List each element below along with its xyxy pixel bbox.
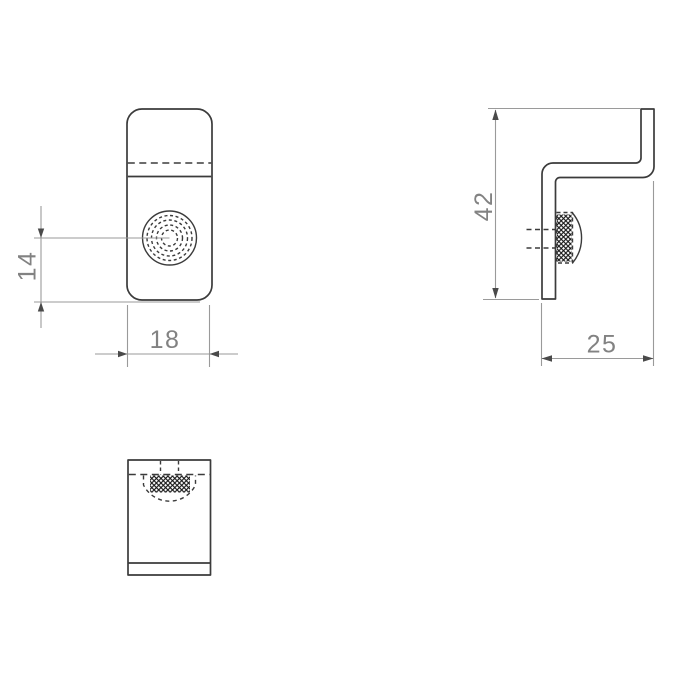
arrow-left-icon: [210, 351, 220, 357]
arrow-up-icon: [492, 110, 498, 121]
arrow-down-icon: [38, 229, 44, 239]
dimension-side-depth: 25: [542, 181, 654, 366]
front-view: [127, 109, 212, 300]
arrow-right-icon: [643, 355, 654, 361]
side-profile-outline: [542, 109, 654, 299]
dimension-value: 25: [587, 331, 618, 359]
arrow-right-icon: [118, 351, 128, 357]
arrow-up-icon: [38, 302, 44, 312]
arrow-left-icon: [542, 355, 553, 361]
dimension-screw-offset: 14: [14, 206, 201, 328]
dimension-value: 14: [14, 251, 42, 282]
bottom-screw-knurl-hatch: [150, 476, 190, 493]
technical-drawing-canvas: 14 18 42 25: [0, 0, 685, 685]
dimension-value: 42: [470, 191, 498, 222]
dimension-value: 18: [150, 326, 181, 354]
side-screw-dome: [573, 213, 582, 263]
bottom-view: [128, 460, 211, 575]
arrow-down-icon: [492, 288, 498, 299]
dimension-front-width: 18: [95, 305, 238, 367]
front-body-outline: [127, 109, 212, 300]
side-screw-knurl-hatch: [557, 215, 572, 262]
side-view: [527, 109, 655, 299]
